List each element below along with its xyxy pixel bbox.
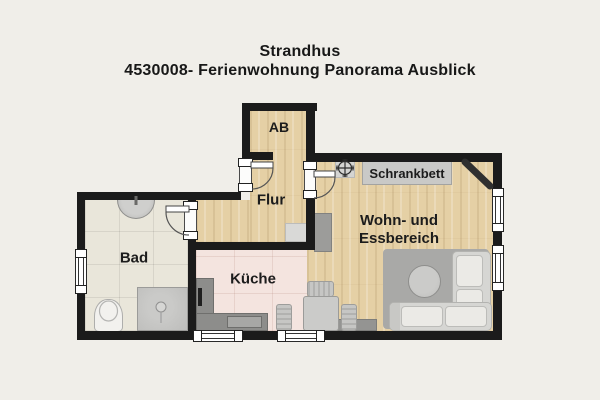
window-living-right-2 <box>492 245 504 290</box>
door-bathroom-jamb <box>183 201 198 210</box>
window-living-right-1 <box>492 188 504 231</box>
room-label-wohnbereich: Wohn- und Essbereich <box>359 212 439 248</box>
sofa-armrest <box>390 303 400 330</box>
living-cabinet <box>314 213 332 252</box>
room-label-ab: AB <box>269 119 289 135</box>
floor-hall-west <box>196 200 250 242</box>
room-label-bad: Bad <box>120 250 148 267</box>
toilet <box>94 299 123 332</box>
door-entrance-jamb <box>238 183 253 192</box>
door-bathroom-jamb <box>183 231 198 240</box>
door-entrance-jamb <box>238 158 253 167</box>
wardrobe-bed: Schrankbett <box>362 161 452 185</box>
room-label-flur: Flur <box>257 192 285 209</box>
dining-chair-right <box>341 304 357 331</box>
dining-chair-top <box>307 281 334 297</box>
shower <box>137 287 188 331</box>
window-dining-bottom <box>277 330 324 342</box>
floor-plan-page: Strandhus 4530008- Ferienwohnung Panoram… <box>0 0 600 400</box>
wall-kitchen-top <box>188 242 315 250</box>
dining-table <box>303 296 339 331</box>
sofa-cushion <box>456 255 483 287</box>
room-label-kueche: Küche <box>230 271 276 288</box>
hall-cabinet <box>285 223 307 242</box>
wall-bathroom-top <box>77 192 241 200</box>
window-kitchen-bottom <box>193 330 242 342</box>
kitchen-sink <box>227 316 262 328</box>
dining-chair-left <box>276 304 292 331</box>
floor-plan: Schrankbett <box>0 0 600 400</box>
door-living-jamb <box>303 161 317 170</box>
sofa-bottom-section <box>389 302 492 331</box>
wall-living-top <box>306 153 502 162</box>
door-living-jamb <box>303 190 317 199</box>
sofa-cushion <box>445 306 487 327</box>
wardrobe-bed-label: Schrankbett <box>369 166 444 181</box>
room-label-wohnbereich-line2: Essbereich <box>359 230 439 248</box>
cooktop-mark <box>198 288 202 306</box>
window-bathroom-left <box>75 249 87 293</box>
room-label-wohnbereich-line1: Wohn- und <box>359 212 439 230</box>
sofa-cushion <box>401 306 443 327</box>
coffee-table <box>408 265 441 298</box>
